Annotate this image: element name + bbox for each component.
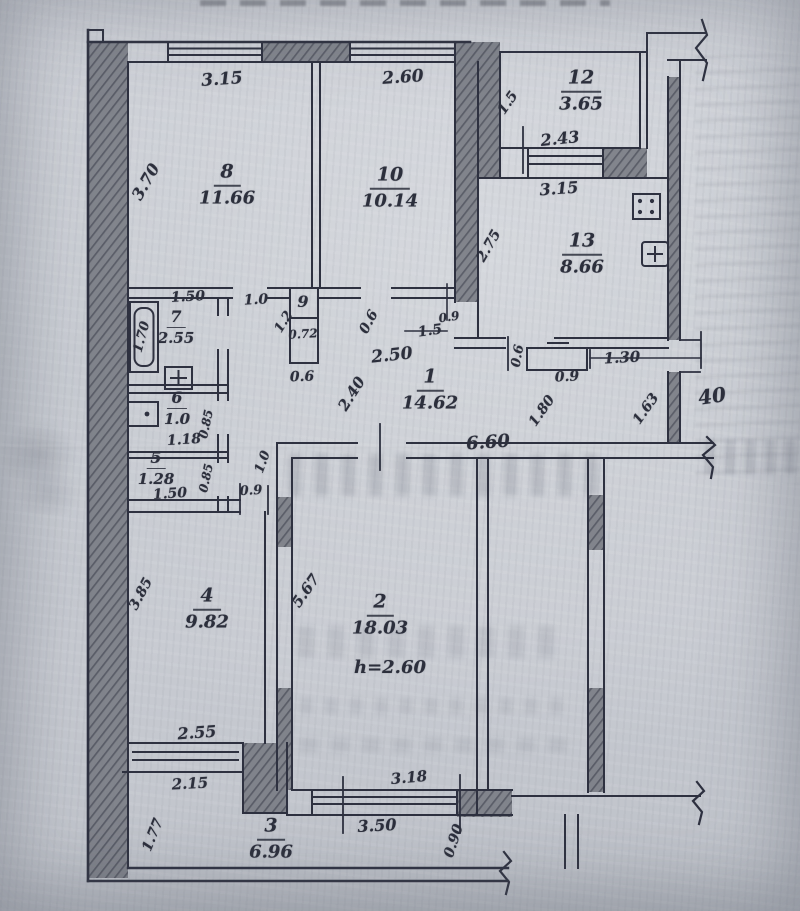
dim-room9-width: 0.72 [288, 327, 318, 341]
kitchen-sink-icon [642, 242, 668, 266]
window-room10 [350, 42, 455, 62]
room-label-6: 6 1.0 [164, 390, 190, 428]
room-label-2: 2 18.03 [352, 593, 408, 640]
stove-icon [633, 194, 660, 219]
window-room4 [123, 743, 243, 772]
dim-room2-window-outer: 3.50 [357, 817, 397, 835]
dim-wall-130: 1.30 [603, 350, 640, 367]
dim-top-room10: 2.60 [382, 68, 424, 88]
scanned-floor-plan-page: 8 11.66 10 10.14 12 3.65 13 8.66 9 7 2.5… [0, 0, 800, 911]
dim-room12-width: 2.43 [540, 129, 580, 149]
room-label-5: 5 1.28 [138, 450, 175, 488]
window-kitchen [528, 148, 603, 178]
dim-room2-window: 3.18 [390, 769, 428, 787]
window-room8 [168, 42, 262, 62]
dim-room9-bottom: 0.6 [290, 370, 315, 385]
room2-height-note: h=2.60 [354, 659, 426, 677]
room-label-9: 9 [293, 294, 312, 312]
dim-room5-width: 1.50 [152, 486, 187, 502]
dim-hall-length: 6.60 [466, 432, 511, 453]
room-label-1: 1 14.62 [402, 368, 458, 415]
dim-wall-40: 40 [697, 384, 727, 408]
dim-room7-width: 1.50 [171, 289, 206, 305]
dim-room4-door: 0.9 [239, 484, 262, 498]
room-label-4: 4 9.82 [185, 587, 229, 634]
room-label-12: 12 3.65 [559, 69, 603, 116]
room-label-8: 8 11.66 [199, 163, 255, 210]
room-label-3: 3 6.96 [249, 817, 293, 864]
dim-room4-width: 2.55 [177, 724, 217, 743]
dim-hall-width: 2.50 [371, 345, 414, 366]
dim-kitchen-width: 3.15 [539, 180, 579, 199]
room-label-10: 10 10.14 [362, 166, 418, 213]
dim-cabinet-width: 0.9 [554, 369, 579, 384]
room-label-7: 7 2.55 [158, 309, 195, 347]
dim-cabinet-depth: 0.6 [510, 344, 527, 369]
toilet-icon [128, 402, 158, 426]
dim-room4-window: 2.15 [171, 776, 208, 793]
dim-room8-door: 1.0 [243, 292, 268, 307]
dim-hall-door-15: 1.5 [417, 322, 443, 339]
dim-top-room8: 3.15 [201, 70, 243, 90]
room-label-13: 13 8.66 [560, 232, 604, 279]
